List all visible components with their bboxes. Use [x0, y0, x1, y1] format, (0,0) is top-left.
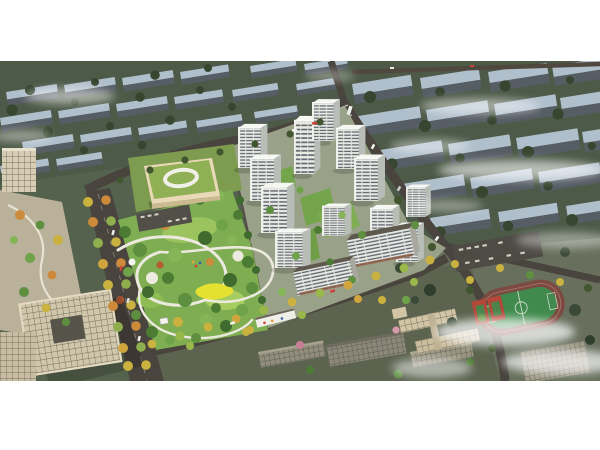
cloud: [392, 358, 472, 378]
tower: [275, 228, 311, 268]
cloud: [435, 318, 575, 346]
tower: [312, 99, 340, 141]
park-pavilion: [160, 317, 169, 324]
park-plaza-node: [233, 251, 244, 262]
render-svg: Residential development master plan — ae…: [0, 61, 600, 381]
tower: [261, 183, 294, 233]
tower: [406, 184, 431, 217]
office-tower-nw: [2, 148, 36, 192]
park-plaza-node: [146, 272, 158, 284]
office-wing: [0, 332, 36, 381]
park-pavilion: [129, 259, 136, 266]
cloud: [420, 98, 540, 114]
tower: [354, 155, 385, 202]
tower: [322, 203, 351, 236]
cloud: [438, 160, 600, 180]
render-caption: Aerial architectural rendering of a resi…: [0, 381, 1, 382]
cloud: [305, 71, 355, 81]
cloud: [413, 200, 483, 212]
page: Residential development master plan — ae…: [0, 0, 600, 450]
cloud: [390, 139, 470, 153]
aerial-render: Residential development master plan — ae…: [0, 61, 600, 381]
cloud: [25, 88, 115, 104]
